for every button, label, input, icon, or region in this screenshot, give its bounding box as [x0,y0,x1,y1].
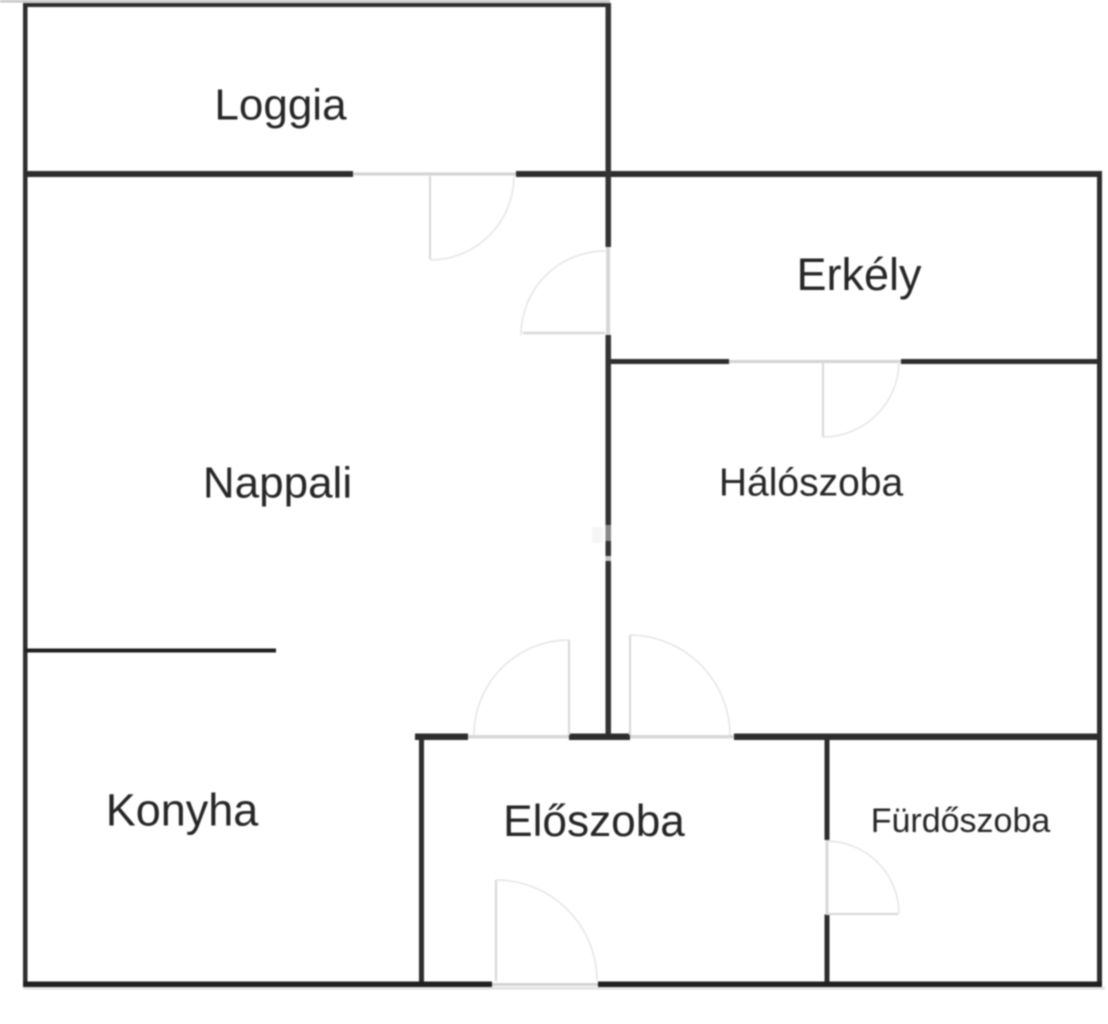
svg-text:Erkély: Erkély [796,249,922,300]
svg-text:Hálószoba: Hálószoba [719,462,904,505]
svg-text:Loggia: Loggia [214,81,347,130]
svg-text:Nappali: Nappali [203,459,352,508]
svg-text:Előszoba: Előszoba [503,797,685,846]
svg-text:Konyha: Konyha [106,785,260,836]
svg-text:Fürdőszoba: Fürdőszoba [871,802,1051,840]
